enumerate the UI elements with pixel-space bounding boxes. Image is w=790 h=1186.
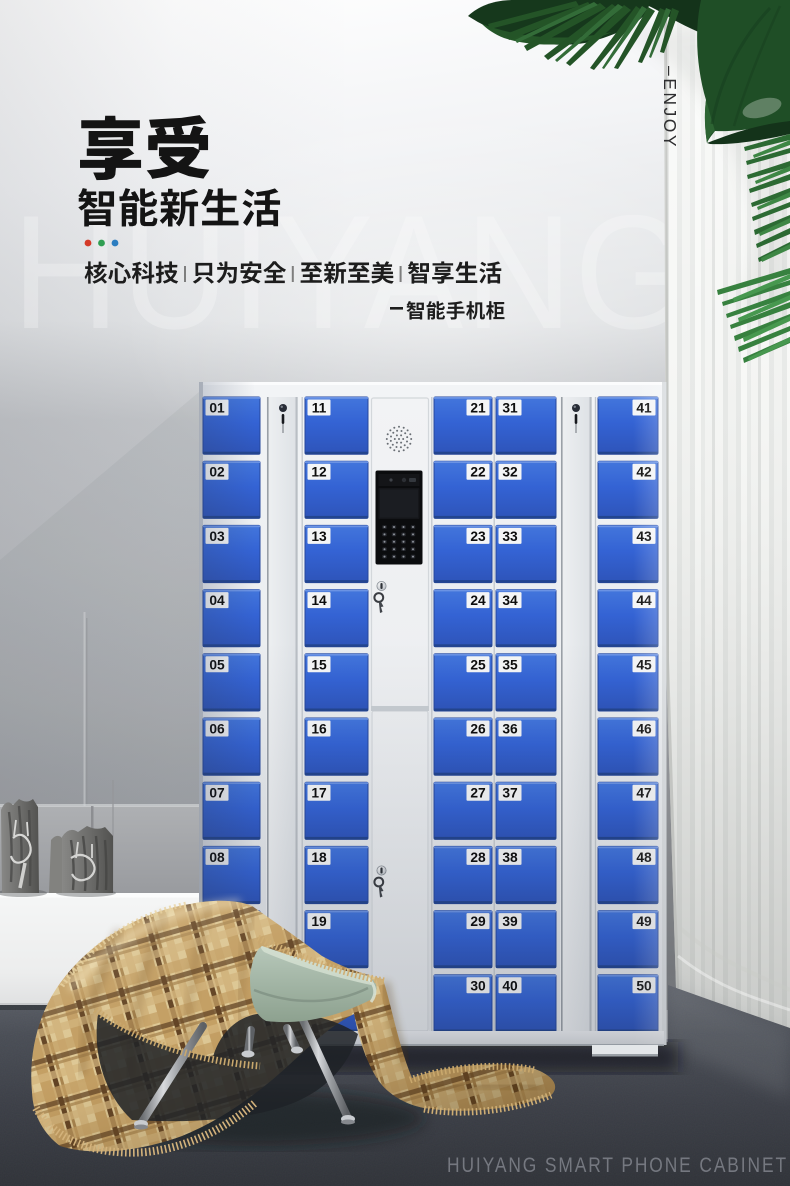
svg-text:–ENJOY: –ENJOY — [660, 66, 680, 149]
svg-text:HUIYANG: HUIYANG — [12, 182, 692, 363]
svg-text:HUIYANG SMART PHONE CABINET: HUIYANG SMART PHONE CABINET — [447, 1154, 788, 1177]
